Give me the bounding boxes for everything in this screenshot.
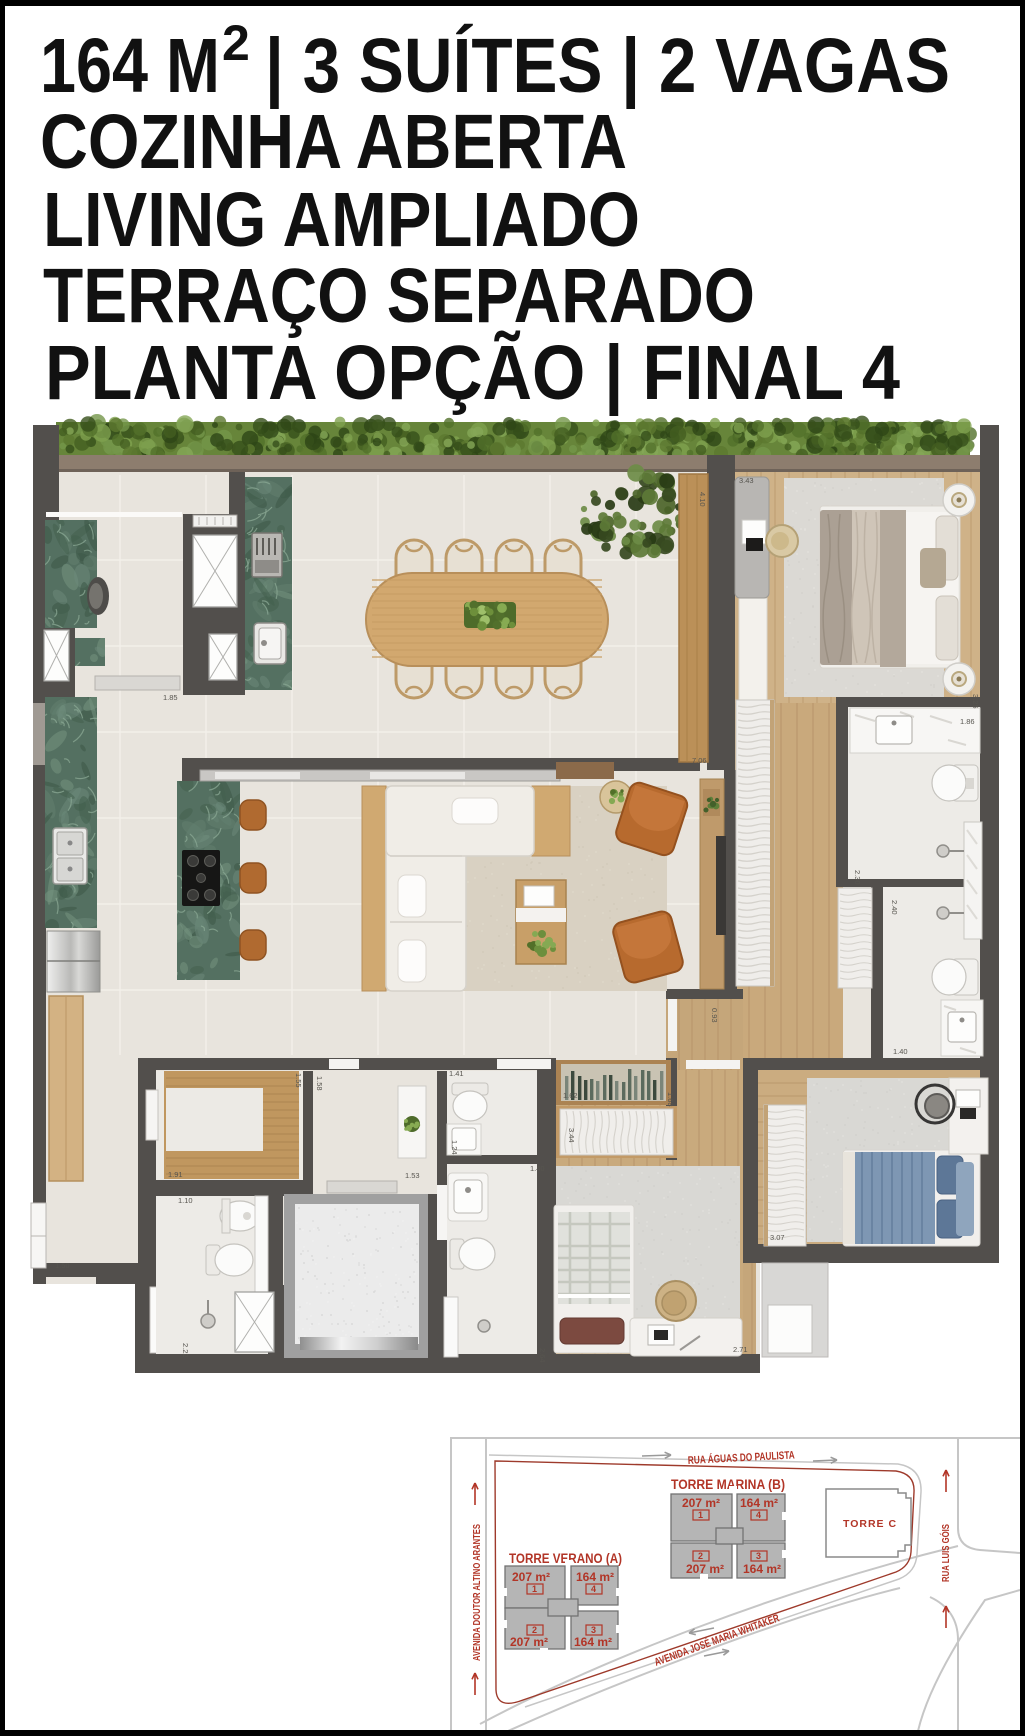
svg-text:3.07: 3.07 [770,1233,785,1242]
svg-text:1.85: 1.85 [163,693,178,702]
svg-text:1: 1 [698,1510,703,1520]
svg-text:1.62: 1.62 [563,1091,578,1100]
svg-text:COZINHA ABERTA: COZINHA ABERTA [40,99,627,185]
svg-text:1.91: 1.91 [168,1170,183,1179]
svg-text:2.22: 2.22 [181,1343,190,1358]
svg-text:RUA LUIS GÓIS: RUA LUIS GÓIS [939,1524,952,1582]
svg-text:TORRE C: TORRE C [843,1518,897,1530]
svg-text:2: 2 [532,1625,537,1635]
svg-text:1.53: 1.53 [405,1171,420,1180]
svg-text:3: 3 [756,1551,761,1561]
svg-text:4: 4 [591,1584,596,1594]
svg-text:207 m²: 207 m² [682,1496,720,1510]
svg-text:2.40: 2.40 [890,900,899,915]
svg-text:3.25: 3.25 [971,694,980,709]
svg-text:TORRE MARINA (B): TORRE MARINA (B) [671,1477,785,1492]
svg-text:1.40: 1.40 [530,1164,545,1173]
svg-text:164 M: 164 M [40,23,220,109]
svg-text:1: 1 [532,1584,537,1594]
svg-text:1.10: 1.10 [178,1196,193,1205]
svg-text:1.50: 1.50 [55,1261,70,1270]
svg-text:1.24: 1.24 [450,1140,459,1155]
svg-text:1.86: 1.86 [960,717,975,726]
svg-text:TERRAÇO SEPARADO: TERRAÇO SEPARADO [43,253,755,339]
svg-text:4: 4 [756,1510,761,1520]
svg-text:7.06: 7.06 [692,756,707,765]
svg-text:3.44: 3.44 [567,1128,576,1143]
svg-text:3.43: 3.43 [739,476,754,485]
svg-text:164 m²: 164 m² [574,1635,612,1649]
svg-text:1.40: 1.40 [893,1047,908,1056]
svg-text:0.93: 0.93 [710,1008,719,1023]
svg-text:207 m²: 207 m² [510,1635,548,1649]
svg-text:1.68: 1.68 [666,1092,675,1107]
svg-text:2.30: 2.30 [853,870,862,885]
svg-text:LIVING AMPLIADO: LIVING AMPLIADO [43,177,640,263]
svg-text:207 m²: 207 m² [686,1562,724,1576]
svg-text:2.71: 2.71 [733,1345,748,1354]
svg-text:1.55: 1.55 [294,1073,303,1088]
svg-text:164 m²: 164 m² [740,1496,778,1510]
svg-text:2: 2 [222,15,250,71]
svg-text:1.41: 1.41 [449,1069,464,1078]
svg-text:164 m²: 164 m² [576,1570,614,1584]
svg-text:PLANTA OPÇÃO | FINAL 4: PLANTA OPÇÃO | FINAL 4 [45,329,900,416]
svg-text:2.64: 2.64 [538,1348,547,1363]
svg-text:| 3 SUÍTES | 2 VAGAS: | 3 SUÍTES | 2 VAGAS [265,23,950,109]
svg-text:1.58: 1.58 [315,1076,324,1091]
svg-text:AVENIDA DOUTOR ALTINO ARANTES: AVENIDA DOUTOR ALTINO ARANTES [472,1524,483,1661]
svg-text:164 m²: 164 m² [743,1562,781,1576]
svg-text:2: 2 [698,1551,703,1561]
svg-text:3: 3 [591,1625,596,1635]
svg-text:207 m²: 207 m² [512,1570,550,1584]
svg-text:4.10: 4.10 [698,492,707,507]
